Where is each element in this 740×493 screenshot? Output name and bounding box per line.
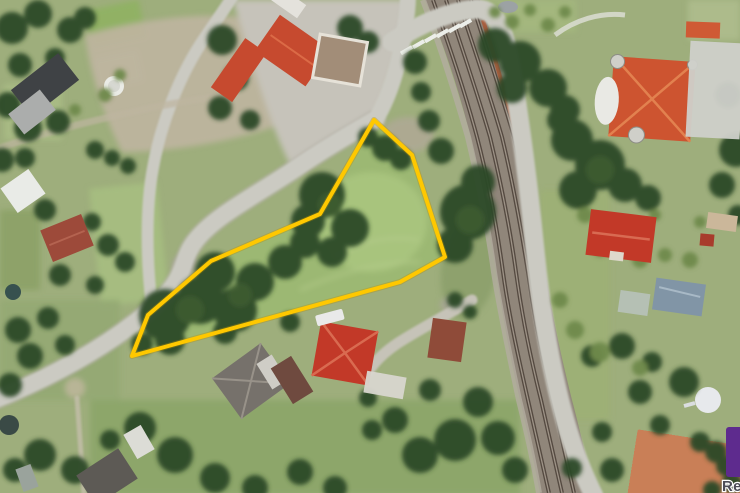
villa-outbuilding [686, 21, 721, 38]
satellite-photo-viewport: Re [0, 0, 740, 493]
watermark-text: Re [722, 478, 740, 493]
aerial-photo: Re [0, 0, 740, 493]
house-bottom-darkred [427, 318, 466, 362]
building-topmiddle-flat [313, 34, 368, 86]
greenhouse-right [618, 290, 651, 316]
trampoline [695, 387, 721, 413]
villa-paved-yard [686, 41, 740, 140]
shed-red [700, 233, 715, 246]
pond [498, 1, 518, 13]
garden-pool-1 [5, 284, 21, 300]
watermark-logo [726, 427, 740, 477]
